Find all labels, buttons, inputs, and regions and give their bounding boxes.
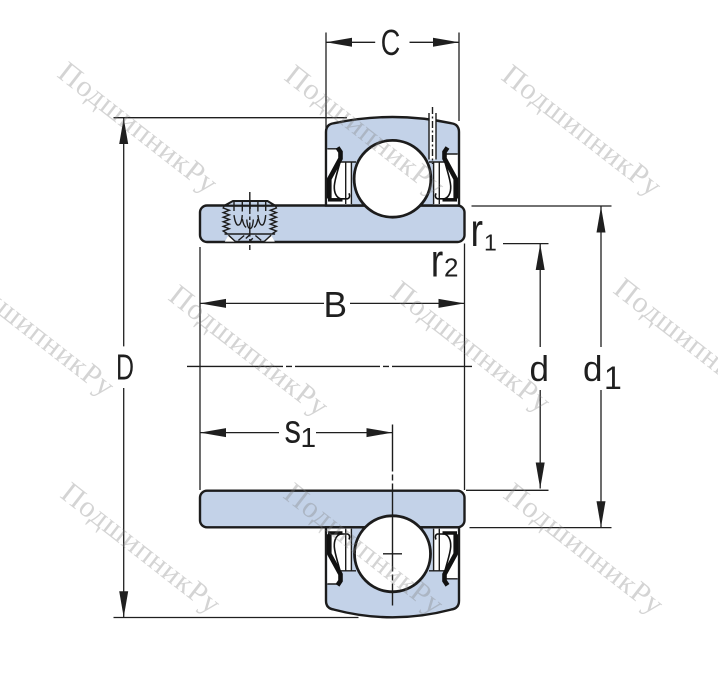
svg-text:r: r <box>471 204 484 256</box>
svg-text:1: 1 <box>604 360 622 396</box>
svg-text:C: C <box>381 22 401 63</box>
svg-text:1: 1 <box>484 229 497 255</box>
svg-text:1: 1 <box>301 422 317 453</box>
svg-text:s: s <box>285 408 302 452</box>
svg-text:r: r <box>431 235 444 287</box>
svg-text:D: D <box>116 346 134 387</box>
svg-text:B: B <box>324 284 348 325</box>
svg-text:d: d <box>583 348 603 389</box>
svg-text:2: 2 <box>444 253 458 283</box>
